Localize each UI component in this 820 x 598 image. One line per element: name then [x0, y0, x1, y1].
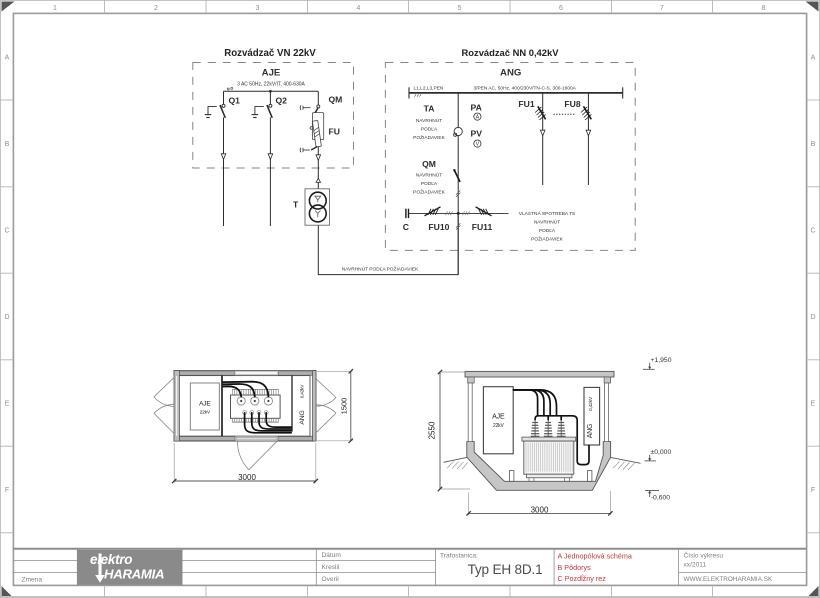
- svg-text:WWW.ELEKTROHARAMIA.SK: WWW.ELEKTROHARAMIA.SK: [684, 576, 774, 583]
- svg-text:C: C: [810, 228, 815, 235]
- svg-text:NAVRHNÚT: NAVRHNÚT: [416, 117, 442, 124]
- svg-text:Overil: Overil: [322, 576, 340, 583]
- svg-text:6: 6: [559, 5, 563, 12]
- svg-text:FU: FU: [329, 127, 340, 137]
- svg-text:L1,L2,L3,PEN: L1,L2,L3,PEN: [414, 86, 444, 92]
- svg-text:D: D: [810, 314, 815, 321]
- svg-text:B Pôdorys: B Pôdorys: [558, 563, 592, 572]
- svg-text:B: B: [811, 141, 816, 148]
- svg-text:Q2: Q2: [276, 96, 288, 106]
- svg-text:ANG: ANG: [500, 68, 521, 79]
- svg-text:elektro: elektro: [90, 552, 132, 567]
- svg-text:FU1: FU1: [518, 99, 534, 109]
- svg-text:±0,000: ±0,000: [651, 449, 672, 456]
- svg-text:5: 5: [458, 5, 462, 12]
- svg-text:A Jednopólová schéma: A Jednopólová schéma: [558, 552, 632, 561]
- svg-text:3000: 3000: [531, 505, 549, 514]
- svg-text:FU8: FU8: [564, 99, 580, 109]
- svg-text:C: C: [403, 222, 409, 232]
- svg-text:C Pozdĺžny rez: C Pozdĺžny rez: [558, 574, 607, 583]
- svg-text:ANG: ANG: [299, 410, 306, 424]
- svg-text:Zmena: Zmena: [22, 577, 43, 584]
- svg-text:F: F: [811, 487, 815, 494]
- svg-text:TA: TA: [424, 104, 435, 114]
- svg-text:E: E: [811, 401, 816, 408]
- svg-text:0,42kV: 0,42kV: [300, 384, 305, 398]
- svg-text:Rozvádzač NN 0,42kV: Rozvádzač NN 0,42kV: [462, 47, 560, 58]
- svg-text:PODĽA: PODĽA: [421, 181, 438, 187]
- svg-text:ANG: ANG: [587, 424, 594, 439]
- svg-text:Rozvádzač VN 22kV: Rozvádzač VN 22kV: [224, 48, 316, 59]
- svg-text:3 AC 50Hz, 22kV/IT, 400-630A: 3 AC 50Hz, 22kV/IT, 400-630A: [237, 81, 305, 87]
- svg-text:FU10: FU10: [428, 222, 449, 232]
- svg-text:3: 3: [256, 5, 260, 12]
- svg-text:QM: QM: [329, 95, 343, 105]
- svg-text:F: F: [5, 487, 9, 494]
- svg-text:VLASTNÁ SPOTREBA TS: VLASTNÁ SPOTREBA TS: [519, 210, 575, 217]
- svg-text:PV: PV: [471, 129, 483, 139]
- svg-text:AJE: AJE: [492, 414, 505, 421]
- svg-text:AJE: AJE: [262, 68, 281, 79]
- svg-text:Trafostanica:: Trafostanica:: [440, 553, 478, 560]
- svg-text:PA: PA: [471, 103, 482, 113]
- svg-text:1: 1: [53, 5, 57, 12]
- svg-text:xx/2011: xx/2011: [684, 562, 707, 569]
- svg-text:-0,600: -0,600: [651, 494, 670, 501]
- svg-text:3/PEN AC, 50Hz, 400/230V/TN-C-: 3/PEN AC, 50Hz, 400/230V/TN-C-S, 300-160…: [474, 86, 577, 92]
- svg-text:22kV: 22kV: [493, 423, 504, 429]
- svg-text:PODĽA: PODĽA: [539, 228, 556, 234]
- svg-text:0,42kV: 0,42kV: [588, 396, 594, 411]
- svg-text:FU11: FU11: [472, 222, 493, 232]
- svg-text:PODĽA: PODĽA: [421, 127, 438, 133]
- svg-text:7: 7: [660, 5, 664, 12]
- svg-text:3000: 3000: [238, 473, 256, 482]
- svg-text:D: D: [4, 314, 9, 321]
- svg-text:2550: 2550: [428, 421, 437, 439]
- svg-text:2: 2: [154, 5, 158, 12]
- svg-text:1500: 1500: [339, 398, 348, 415]
- svg-text:HARAMIA: HARAMIA: [104, 567, 164, 582]
- svg-text:22kV: 22kV: [200, 410, 211, 416]
- svg-text:T: T: [293, 200, 299, 210]
- svg-text:QM: QM: [422, 159, 436, 169]
- svg-text:+1,950: +1,950: [651, 357, 672, 364]
- svg-text:Kreslil: Kreslil: [322, 564, 340, 571]
- svg-text:4: 4: [357, 5, 361, 12]
- svg-text:C: C: [4, 228, 9, 235]
- svg-text:E: E: [5, 401, 10, 408]
- svg-text:B: B: [5, 141, 10, 148]
- svg-text:A: A: [5, 55, 10, 62]
- svg-text:8: 8: [762, 5, 766, 12]
- svg-text:Typ EH 8D.1: Typ EH 8D.1: [468, 562, 543, 577]
- svg-text:AJE: AJE: [199, 401, 211, 408]
- svg-text:Q1: Q1: [229, 96, 241, 106]
- svg-text:NAVRHNÚT: NAVRHNÚT: [534, 219, 560, 226]
- svg-text:Číslo výkresu: Číslo výkresu: [684, 551, 724, 560]
- svg-text:NAVRHNÚT: NAVRHNÚT: [416, 172, 442, 179]
- svg-text:Dátum: Dátum: [322, 552, 342, 559]
- svg-text:A: A: [811, 55, 816, 62]
